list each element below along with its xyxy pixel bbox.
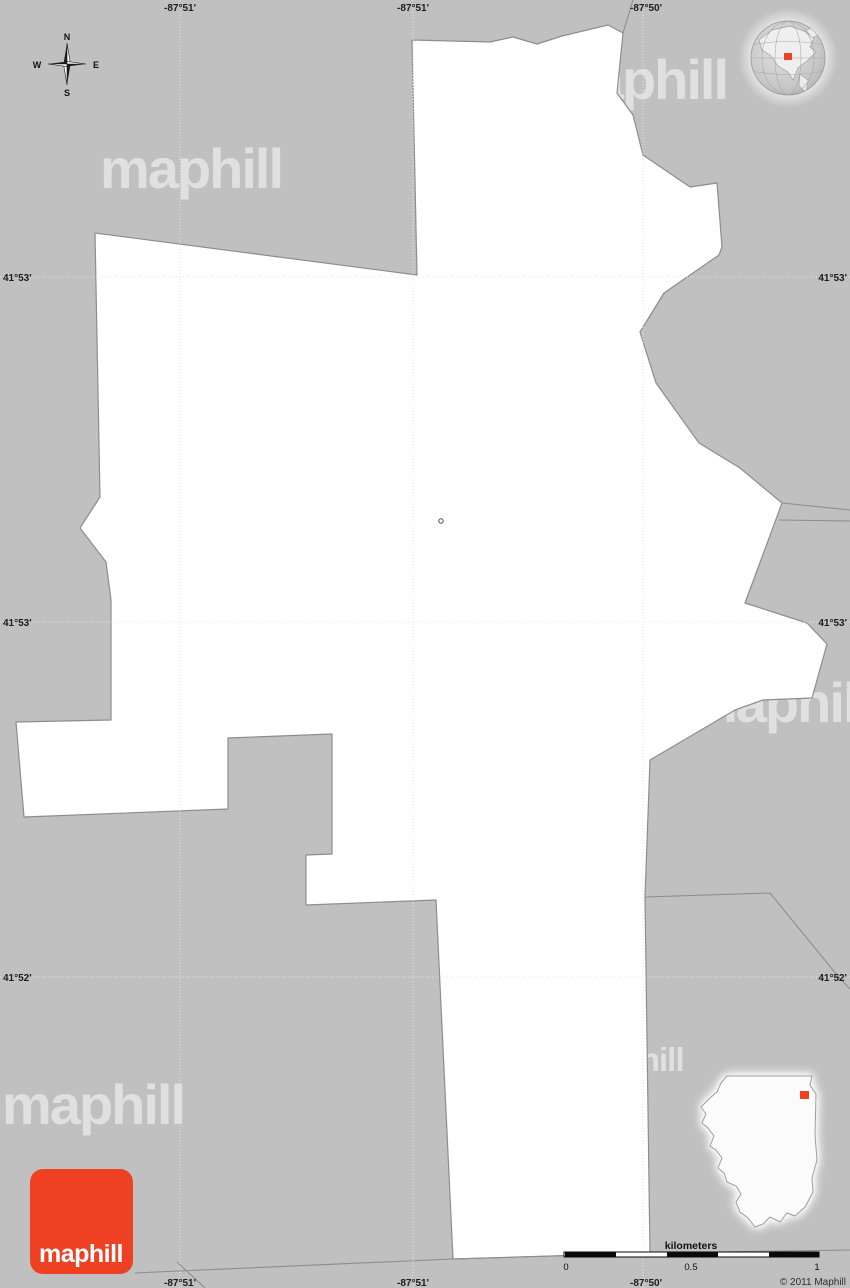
grid-label-right: 41°53' [818, 618, 847, 629]
grid-label-bottom: -87°50' [630, 1278, 662, 1288]
grid-label-top: -87°50' [630, 3, 662, 14]
scale-tick-label: 0.5 [684, 1262, 697, 1273]
grid-label-bottom: -87°51' [397, 1278, 429, 1288]
watermark-text: maphill [2, 1073, 184, 1136]
scale-tick-label: 1 [814, 1262, 819, 1273]
scale-tick-label: 0 [563, 1262, 568, 1273]
state-inset-location-marker [800, 1091, 809, 1099]
globe-locator-icon [738, 8, 838, 108]
scale-unit-label: kilometers [665, 1240, 718, 1252]
maphill-logo[interactable]: maphill [30, 1169, 133, 1274]
maphill-logo-text: maphill [39, 1240, 123, 1268]
grid-label-left: 41°53' [3, 273, 32, 284]
grid-label-top: -87°51' [397, 3, 429, 14]
watermark-text: maphill [100, 137, 282, 200]
compass-south-label: S [64, 88, 70, 98]
map-canvas[interactable]: maphill maphill maphill maphill maphill … [0, 0, 850, 1288]
compass-east-label: E [93, 60, 99, 70]
globe-location-marker [784, 53, 792, 60]
grid-label-right: 41°53' [818, 273, 847, 284]
map-center-marker [439, 519, 443, 523]
grid-label-top: -87°51' [164, 3, 196, 14]
grid-label-right: 41°52' [818, 973, 847, 984]
copyright-notice: © 2011 Maphill [780, 1277, 846, 1288]
compass-west-label: W [33, 60, 42, 70]
grid-label-bottom: -87°51' [164, 1278, 196, 1288]
compass-north-label: N [64, 32, 71, 42]
grid-label-left: 41°52' [3, 973, 32, 984]
grid-label-left: 41°53' [3, 618, 32, 629]
